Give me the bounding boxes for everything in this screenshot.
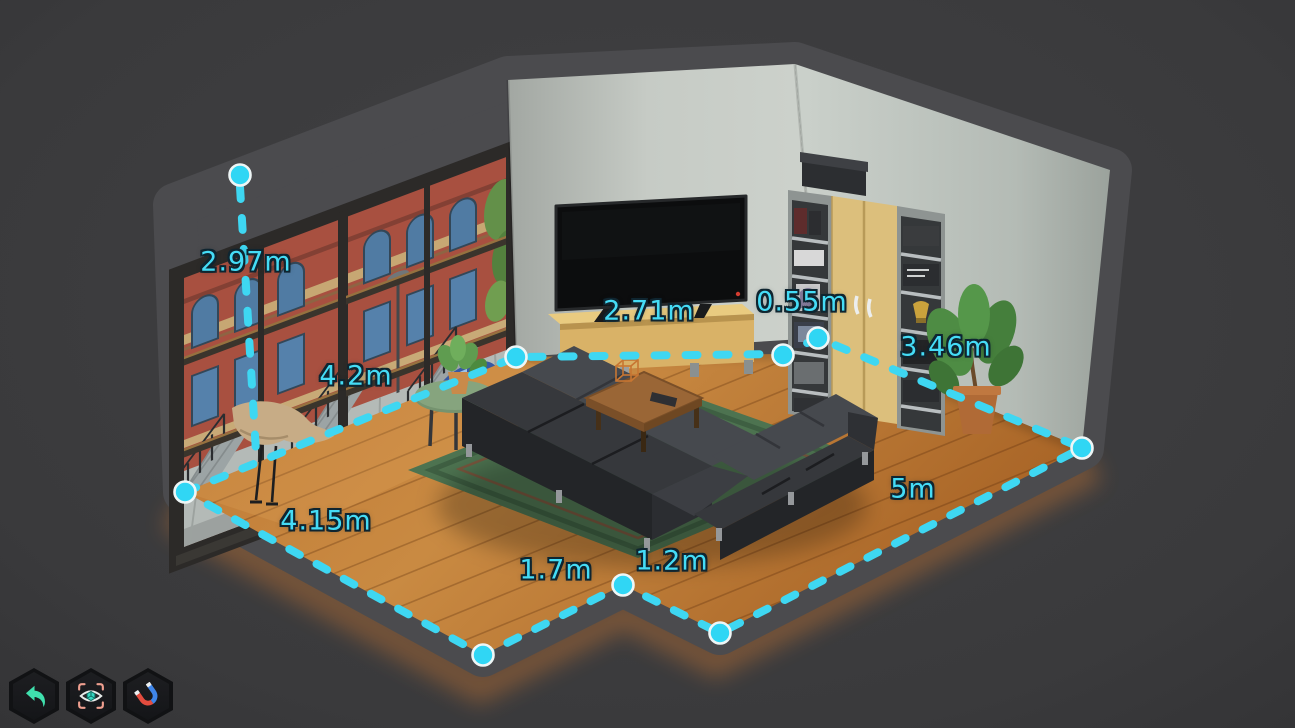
magnet-snap-button[interactable]	[123, 668, 173, 724]
cabinet-doors	[832, 196, 897, 424]
undo-button[interactable]	[9, 668, 59, 724]
app-window: 2.97m 4.2m 2.71m 0.55m 3.46m 5m 4.15m 1.…	[0, 0, 1295, 728]
vertex-handle[interactable]	[1072, 438, 1093, 459]
toolbar	[9, 668, 173, 724]
vertex-handle[interactable]	[473, 645, 494, 666]
vertex-handle[interactable]	[175, 482, 196, 503]
eye-scan-icon	[77, 682, 105, 710]
bookshelf-left-shelves	[792, 200, 828, 416]
undo-arrow-icon	[20, 682, 48, 710]
magnet-icon	[134, 682, 162, 710]
vertex-handle[interactable]	[710, 623, 731, 644]
vertex-handle[interactable]	[773, 345, 794, 366]
scan-view-button[interactable]	[66, 668, 116, 724]
vertex-handle[interactable]	[613, 575, 634, 596]
vertex-handle[interactable]	[808, 328, 829, 349]
vertex-handle[interactable]	[506, 347, 527, 368]
room-viewport[interactable]	[0, 0, 1295, 728]
vertex-handle[interactable]	[230, 165, 251, 186]
